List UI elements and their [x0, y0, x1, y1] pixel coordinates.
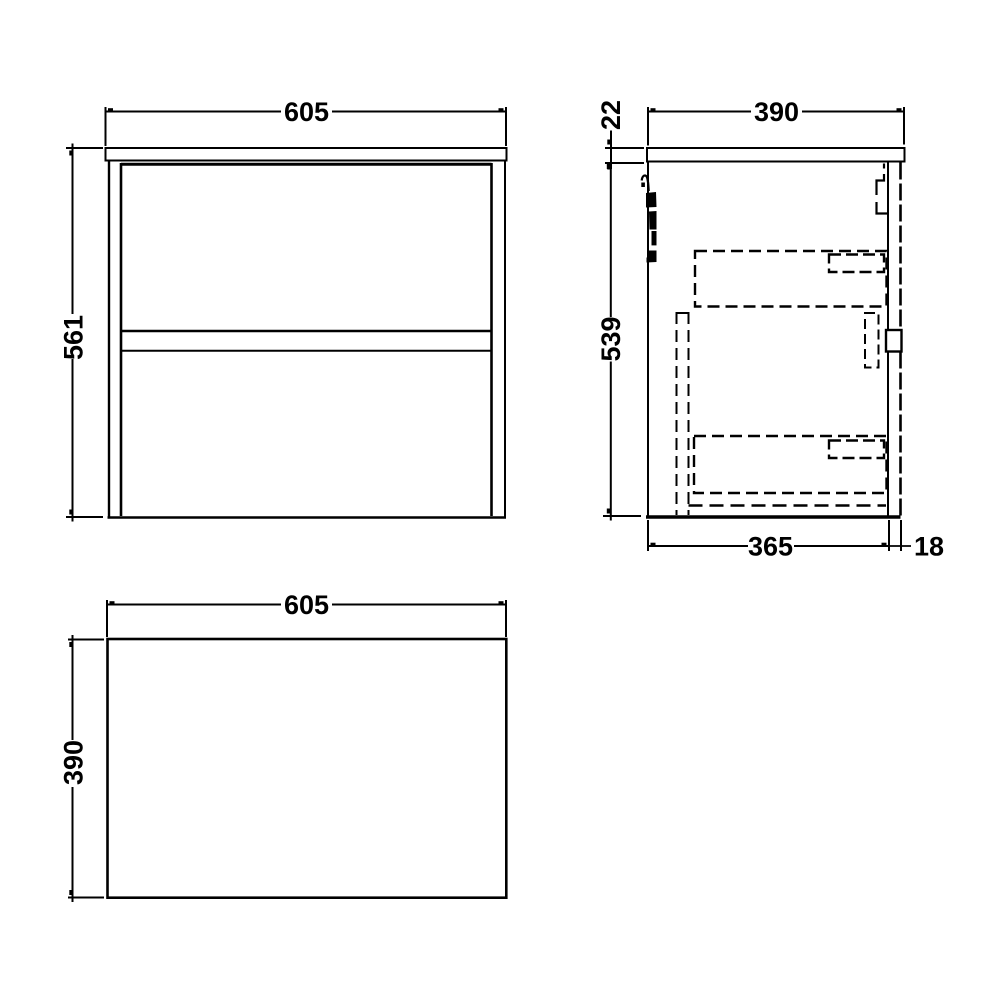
svg-text:390: 390: [754, 97, 799, 127]
svg-text:390: 390: [59, 740, 89, 785]
svg-text:539: 539: [596, 316, 626, 361]
svg-text:22: 22: [596, 100, 626, 130]
svg-text:365: 365: [748, 532, 793, 562]
svg-text:605: 605: [284, 97, 329, 127]
svg-text:18: 18: [914, 532, 944, 562]
svg-text:561: 561: [59, 315, 89, 360]
svg-text:605: 605: [284, 590, 329, 620]
